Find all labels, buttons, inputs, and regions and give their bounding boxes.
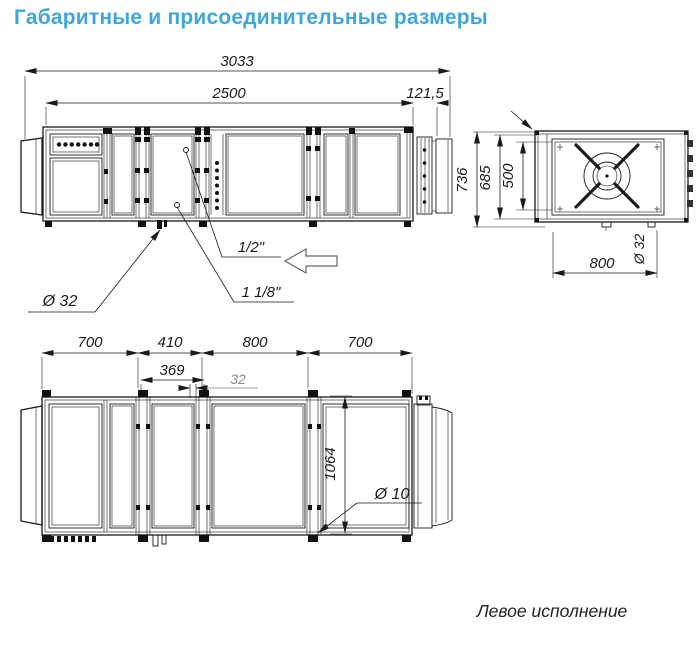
end-view-dimensions: 736 685 500 800 Ø 32 [454, 132, 657, 278]
side-door-panel [50, 158, 102, 215]
dim-section-2: 410 [157, 334, 183, 351]
fan-impeller [576, 145, 638, 207]
dim-section-4: 700 [347, 334, 373, 351]
dim-overall-length: 3033 [220, 53, 254, 70]
dim-section-3: 800 [242, 334, 268, 351]
technical-drawing: 3033 2500 121,5 1/2" 1 1/8" Ø 32 [0, 0, 700, 651]
dim-flange-length: 121,5 [406, 85, 444, 102]
side-view-dimensions: 3033 2500 121,5 [25, 53, 450, 139]
plan-body [42, 397, 412, 535]
side-right-flange [432, 139, 452, 213]
plan-teeth [50, 536, 96, 542]
end-body [535, 131, 688, 222]
label-hole-diameter: Ø 10 [374, 486, 410, 503]
end-drain-fitting [648, 222, 655, 227]
airflow-direction-icon [285, 249, 337, 273]
dim-overall-height: 736 [454, 167, 471, 193]
side-left-flange [21, 138, 42, 215]
panel-screws [557, 144, 660, 212]
label-drain-diameter: Ø 32 [42, 293, 78, 310]
side-drain-fitting [157, 220, 162, 229]
side-view [21, 127, 452, 229]
drawing-page: Габаритные и присоединительные размеры [0, 0, 700, 651]
side-right-connector [417, 137, 432, 214]
dim-axis-offset: 369 [159, 362, 185, 379]
plan-left-flange [21, 406, 42, 525]
side-perforated-strip [215, 161, 219, 210]
dim-fan-section-width: 800 [589, 255, 615, 272]
label-pipe-small: 1/2" [238, 239, 265, 256]
dim-body-height: 685 [477, 165, 494, 191]
side-view-callouts: 1/2" 1 1/8" Ø 32 [28, 148, 337, 313]
caption-version: Левое исполнение [476, 601, 628, 621]
pipe-fitting-large [175, 203, 180, 208]
label-pipe-large: 1 1/8" [242, 284, 281, 301]
dim-small-offset: 32 [230, 371, 246, 387]
plan-right-flange [414, 396, 452, 528]
side-grille [50, 134, 102, 155]
pipe-fitting-small [184, 148, 189, 153]
dim-body-length: 2500 [211, 85, 246, 102]
dim-opening-height: 500 [500, 163, 517, 189]
mount-foot-hole [308, 535, 318, 542]
end-view [511, 111, 693, 231]
dim-section-1: 700 [77, 334, 103, 351]
dim-mount-holes: 1064 [322, 447, 339, 480]
plan-view [21, 390, 452, 546]
label-end-drain-diameter: Ø 32 [631, 234, 647, 266]
